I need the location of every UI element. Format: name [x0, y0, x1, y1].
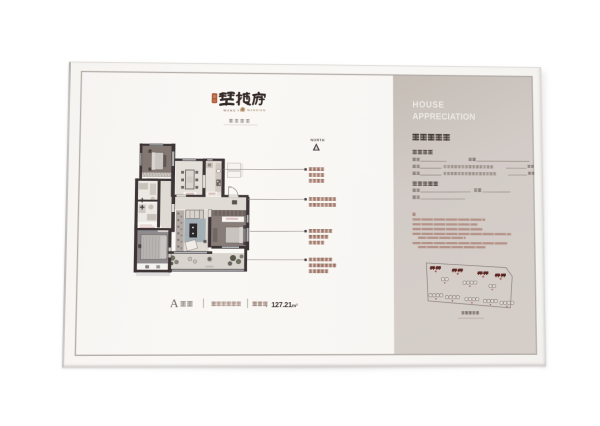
svg-text:m²: m² — [292, 303, 298, 309]
svg-text:HOUSE: HOUSE — [412, 99, 444, 109]
svg-text:APPRECIATION: APPRECIATION — [412, 111, 475, 122]
svg-text:NORTH: NORTH — [310, 138, 324, 142]
svg-text:MANSION: MANSION — [247, 108, 266, 112]
svg-text::: : — [265, 303, 267, 309]
svg-text:127.21: 127.21 — [271, 302, 292, 309]
svg-text:A: A — [170, 296, 179, 310]
